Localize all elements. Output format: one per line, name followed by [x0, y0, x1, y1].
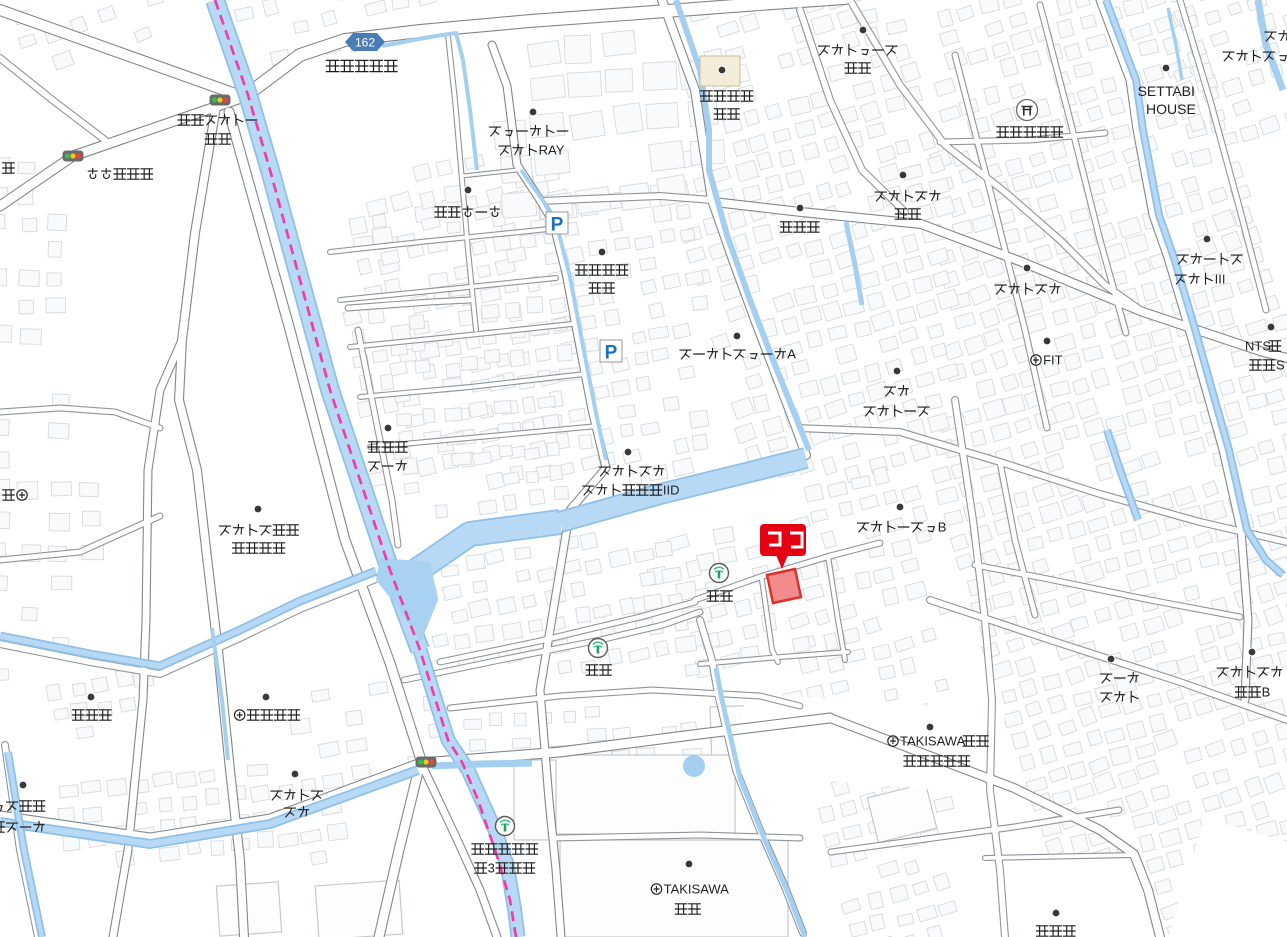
svg-text:IID: IID	[663, 483, 680, 498]
svg-text:HOUSE: HOUSE	[1146, 101, 1196, 117]
svg-text:SETTABI: SETTABI	[1138, 83, 1195, 99]
svg-text:III: III	[1215, 272, 1226, 287]
svg-text:P: P	[551, 215, 564, 236]
svg-text:162: 162	[355, 36, 375, 50]
svg-text:FIT: FIT	[1043, 353, 1063, 368]
svg-text:A: A	[787, 347, 796, 362]
svg-text:B: B	[938, 520, 947, 535]
svg-text:TAKISAWA: TAKISAWA	[664, 882, 730, 897]
svg-text:3: 3	[488, 861, 495, 876]
svg-text:S: S	[1276, 358, 1285, 373]
svg-text:NTS: NTS	[1245, 339, 1271, 354]
svg-text:RAY: RAY	[539, 143, 565, 158]
svg-text:TAKISAWA: TAKISAWA	[900, 734, 966, 749]
svg-text:P: P	[605, 343, 618, 364]
svg-text:B: B	[1262, 685, 1271, 700]
